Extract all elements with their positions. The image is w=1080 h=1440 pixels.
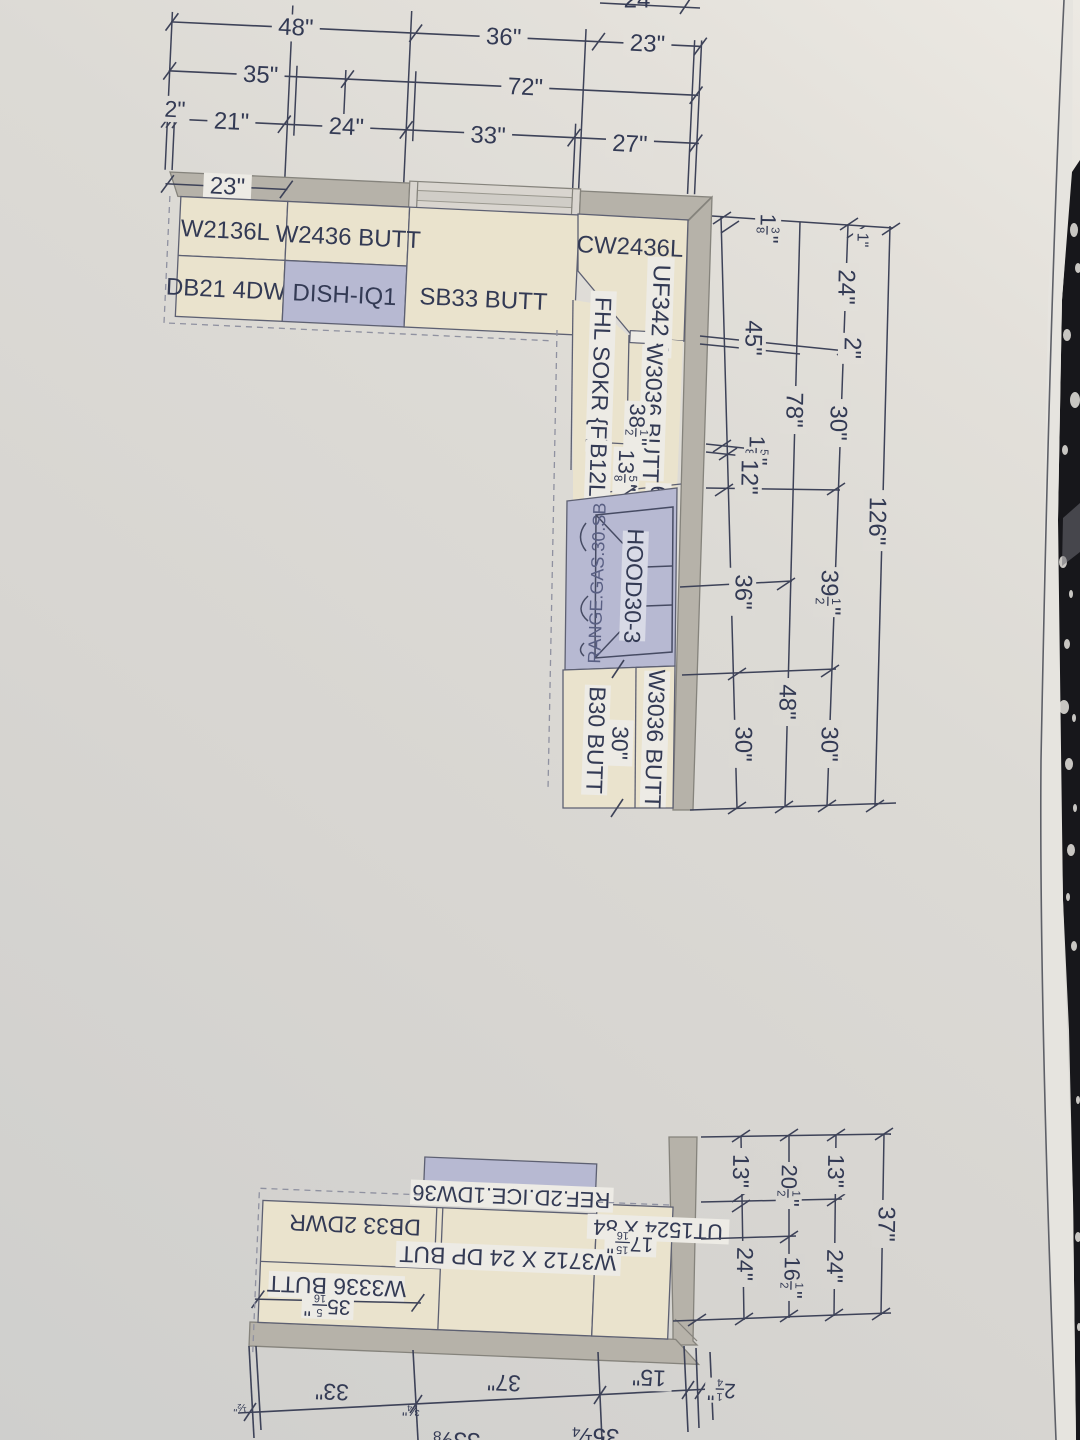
svg-text:33": 33" xyxy=(315,1378,350,1405)
svg-text:36": 36" xyxy=(729,574,757,610)
svg-text:2: 2 xyxy=(777,1282,789,1289)
svg-text:W3036 BUTT: W3036 BUTT xyxy=(640,669,671,809)
svg-text:24": 24" xyxy=(832,269,860,305)
svg-text:": " xyxy=(303,1296,311,1319)
svg-text:15: 15 xyxy=(616,1243,629,1255)
svg-text:8: 8 xyxy=(754,227,766,234)
svg-text:": " xyxy=(606,1234,614,1257)
svg-text:3: 3 xyxy=(769,227,781,234)
svg-text:2: 2 xyxy=(622,429,634,436)
svg-text:": " xyxy=(818,607,845,616)
svg-text:30": 30" xyxy=(824,405,852,441)
svg-text:HOOD30-3: HOOD30-3 xyxy=(619,528,649,644)
svg-text:DB33 2DWR: DB33 2DWR xyxy=(289,1210,422,1241)
svg-text:48": 48" xyxy=(773,684,801,720)
svg-text:13: 13 xyxy=(613,449,639,474)
svg-text:4: 4 xyxy=(717,1376,723,1388)
svg-text:78": 78" xyxy=(780,392,808,428)
svg-text:23": 23" xyxy=(629,30,665,59)
svg-text:15": 15" xyxy=(632,1364,667,1391)
svg-text:24": 24" xyxy=(328,113,364,142)
svg-text:2": 2" xyxy=(164,96,186,123)
svg-text:30": 30" xyxy=(729,726,757,762)
svg-text:": " xyxy=(615,483,640,492)
svg-text:1: 1 xyxy=(745,435,770,448)
svg-text:35: 35 xyxy=(327,1295,351,1319)
svg-text:21": 21" xyxy=(213,107,249,136)
svg-text:33": 33" xyxy=(470,121,506,150)
svg-text:¾": ¾" xyxy=(402,1401,420,1419)
svg-text:1: 1 xyxy=(637,429,649,436)
svg-text:30": 30" xyxy=(815,726,843,762)
svg-text:": " xyxy=(626,437,651,446)
svg-text:13": 13" xyxy=(823,1154,850,1188)
svg-text:30": 30" xyxy=(606,726,633,761)
svg-text:½": ½" xyxy=(233,1401,247,1413)
svg-text:17: 17 xyxy=(630,1232,654,1256)
svg-text:": " xyxy=(758,235,783,243)
svg-text:36": 36" xyxy=(485,23,521,52)
svg-text:1: 1 xyxy=(789,1190,801,1197)
svg-text:": " xyxy=(782,1291,807,1299)
svg-text:1": 1" xyxy=(853,233,870,248)
svg-text:24: 24 xyxy=(624,0,651,14)
svg-text:39: 39 xyxy=(815,570,842,597)
svg-text:2": 2" xyxy=(838,337,865,359)
svg-text:": " xyxy=(779,1199,804,1207)
svg-text:1: 1 xyxy=(829,598,843,605)
svg-text:UF342 {: UF342 { xyxy=(645,264,675,352)
svg-text:37": 37" xyxy=(872,1206,900,1242)
svg-text:20: 20 xyxy=(776,1164,801,1189)
svg-text:72": 72" xyxy=(507,73,543,102)
svg-text:16: 16 xyxy=(617,1229,630,1241)
svg-text:37": 37" xyxy=(487,1369,522,1396)
svg-text:8: 8 xyxy=(611,475,623,482)
svg-text:": " xyxy=(707,1381,715,1404)
svg-text:35": 35" xyxy=(242,61,278,90)
svg-text:45": 45" xyxy=(739,320,767,356)
svg-text:B30 BUTT: B30 BUTT xyxy=(581,686,611,794)
svg-text:5: 5 xyxy=(316,1306,323,1318)
svg-text:24": 24" xyxy=(822,1249,849,1283)
svg-text:16: 16 xyxy=(779,1256,804,1281)
svg-text:23": 23" xyxy=(209,172,245,201)
svg-text:W2136L: W2136L xyxy=(180,215,271,246)
svg-text:48": 48" xyxy=(278,13,314,42)
svg-text:2: 2 xyxy=(724,1379,736,1402)
svg-text:33⅝: 33⅝ xyxy=(432,1426,481,1440)
svg-text:24": 24" xyxy=(732,1247,759,1281)
svg-text:2: 2 xyxy=(774,1190,786,1197)
svg-text:1: 1 xyxy=(716,1390,722,1402)
svg-text:126": 126" xyxy=(863,496,891,545)
svg-text:B12L: B12L xyxy=(584,443,612,498)
svg-text:5: 5 xyxy=(626,475,638,482)
svg-text:27": 27" xyxy=(612,130,648,159)
svg-text:12": 12" xyxy=(735,459,763,495)
svg-text:1: 1 xyxy=(792,1282,804,1289)
svg-text:13": 13" xyxy=(728,1154,755,1188)
svg-text:35¼: 35¼ xyxy=(571,1422,620,1440)
svg-text:2: 2 xyxy=(813,598,827,605)
svg-text:38: 38 xyxy=(624,403,650,428)
svg-text:DISH-IQ1: DISH-IQ1 xyxy=(292,279,397,311)
svg-text:16: 16 xyxy=(314,1292,327,1304)
svg-text:FHL SOKR {F}: FHL SOKR {F} xyxy=(585,297,616,448)
svg-text:1: 1 xyxy=(756,213,781,226)
